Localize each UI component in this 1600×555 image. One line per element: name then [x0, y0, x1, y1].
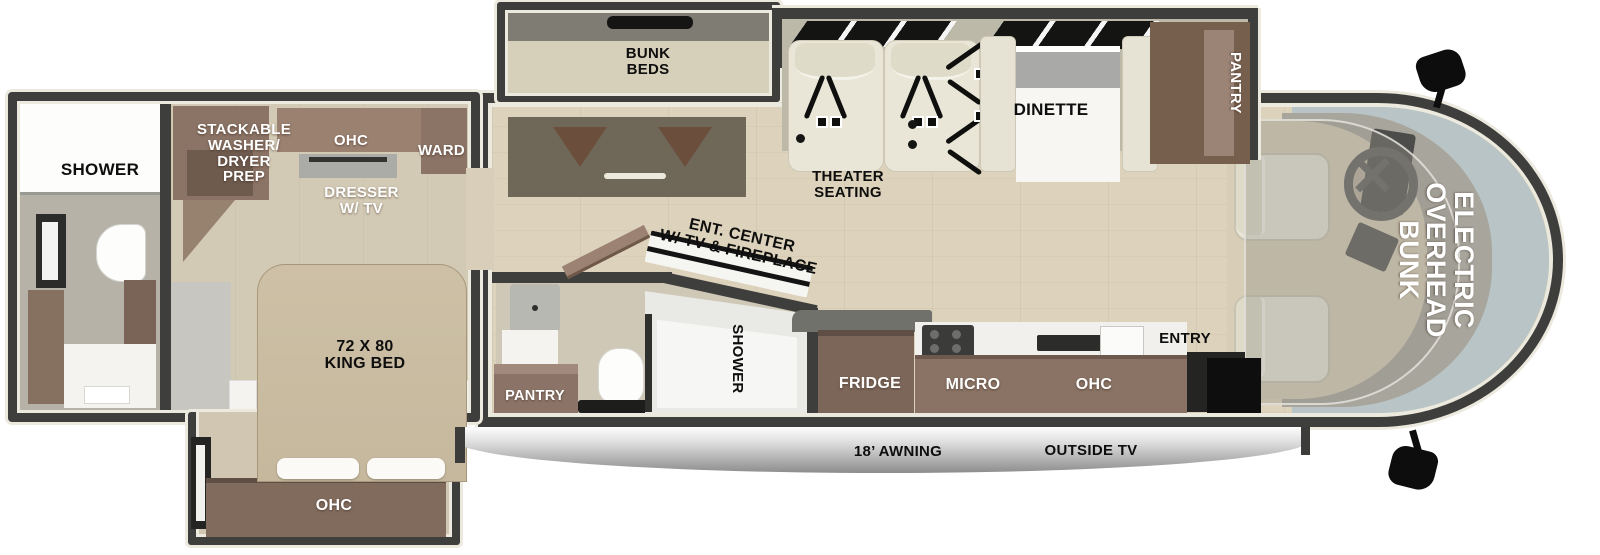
entry-door-panel: [1100, 326, 1144, 358]
toilet: [598, 348, 644, 404]
bedroom-ohc-label: OHC: [321, 133, 381, 149]
bedroom-doorway: [466, 168, 494, 270]
wardrobe: [421, 108, 467, 174]
side-mirror-bottom: [1386, 443, 1440, 493]
theater-seating-label: THEATER SEATING: [793, 169, 903, 201]
bath-sink: [510, 284, 560, 332]
dinette-table-window-reflection: [1016, 46, 1120, 88]
mid-pantry-label: PANTRY: [495, 389, 575, 404]
dresser-label: DRESSER W/ TV: [304, 185, 419, 217]
entry-label: ENTRY: [1145, 331, 1225, 347]
table-leg-frame: [553, 127, 607, 167]
outside-tv-label: OUTSIDE TV: [1021, 443, 1161, 459]
rear-toilet: [96, 224, 146, 282]
cooktop: [922, 325, 974, 358]
pillow: [277, 458, 359, 479]
king-bed-label: 72 X 80 KING BED: [300, 339, 430, 373]
rear-bath-window: [36, 214, 66, 288]
rear-vanity-cabinet: [28, 290, 64, 404]
fridge-label: FRIDGE: [825, 376, 915, 393]
kitchen-counter-back: [792, 310, 932, 332]
overhead-bunk-label: ELECTRIC OVERHEAD BUNK: [1389, 145, 1477, 375]
window-glass: [42, 222, 58, 280]
dresser-tv-screen: [309, 157, 387, 162]
corner-shelf: [183, 200, 235, 262]
dinette-label: DINETTE: [998, 101, 1104, 119]
theater-recliner: [884, 40, 980, 172]
window-glass: [196, 445, 205, 521]
awning-label: 18’ AWNING: [830, 444, 966, 460]
rear-shower-label: SHOWER: [40, 161, 160, 179]
awning-end-cap: [1301, 427, 1310, 455]
dinette-slideout: [772, 8, 1258, 174]
recliner-headrest: [795, 43, 875, 80]
rear-sink: [84, 386, 130, 404]
rear-bath: [20, 104, 160, 410]
mid-shower-label: SHOWER: [729, 304, 745, 414]
ward-label: WARD: [404, 143, 479, 159]
washer-dryer-label: STACKABLE WASHER/ DRYER PREP: [174, 122, 314, 185]
fridge: [818, 330, 914, 413]
awning-end-cap: [455, 427, 465, 463]
mid-shower-inner: [657, 310, 797, 408]
dinner-table: [508, 117, 746, 197]
bath-bedroom-wall: [160, 104, 171, 410]
table-leg-frame: [658, 127, 712, 167]
pantry-top-label: PANTRY: [1227, 43, 1243, 123]
slide-opening-wall: [171, 282, 231, 410]
bunk-handle: [607, 16, 693, 29]
king-bed: [257, 264, 467, 482]
kitchen-ohc-label: OHC: [1061, 377, 1127, 394]
table-slot: [604, 173, 666, 179]
rear-bath-cabinet-tall: [124, 280, 156, 352]
bed-slide-ohc-label: OHC: [299, 498, 369, 515]
rear-shower-glass: [20, 192, 160, 195]
micro-label: MICRO: [928, 377, 1018, 394]
sink-drain: [532, 305, 538, 311]
bunk-beds-label: BUNK BEDS: [600, 46, 696, 78]
nightstand: [229, 380, 257, 410]
dinette-slide-wall-top: [772, 8, 1258, 19]
entry-step: [1207, 358, 1261, 413]
dinette-slide-wall-left: [772, 8, 782, 68]
rv-floorplan: SHOWER STACKABLE WASHER/ DRYER PREP OHC …: [0, 0, 1600, 555]
pillow: [367, 458, 445, 479]
rear-vanity-counter: [64, 344, 156, 408]
shower-glass-door: [645, 314, 652, 412]
theater-recliner: [788, 40, 884, 172]
mid-bath-wall-top: [492, 272, 672, 283]
rear-shower-stall: [20, 104, 160, 194]
